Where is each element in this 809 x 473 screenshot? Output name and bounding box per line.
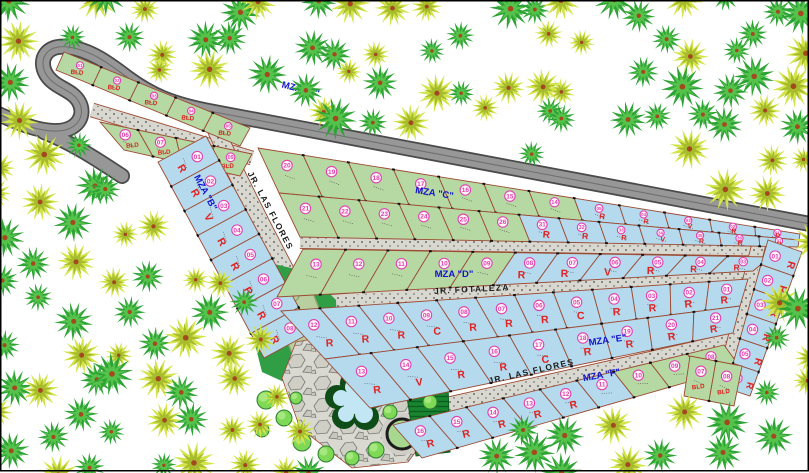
lot-number: 03 (648, 293, 656, 300)
bush-highlight (259, 393, 268, 402)
palm-tree-green-icon (545, 416, 584, 455)
lot-letter: R (648, 302, 657, 315)
lot-letter: BLD (181, 115, 195, 123)
palm-tree-yellow-icon (392, 104, 430, 141)
palm-tree-yellow-icon (568, 29, 594, 55)
palm-tree-yellow-icon (594, 406, 633, 445)
lot-number: 11 (398, 261, 405, 268)
setback-mark (514, 252, 517, 254)
lot-number: 02 (115, 78, 121, 83)
setback-mark (438, 206, 441, 208)
lot-letter: V (415, 376, 423, 389)
setback-mark (610, 357, 613, 359)
lot-number: 04 (641, 212, 647, 217)
bush-highlight (346, 452, 353, 459)
lot-number: 25 (460, 216, 468, 223)
lot-letter: C (433, 325, 442, 338)
setback-mark (370, 352, 373, 354)
bush-highlight (370, 444, 378, 452)
lot-number: 05 (654, 259, 662, 266)
palm-tree-green-icon (0, 0, 30, 23)
palm-tree-green-icon (0, 369, 33, 406)
palm-tree-green-icon (98, 419, 125, 446)
palm-tree-green-icon (713, 73, 749, 109)
lot-number: 06 (260, 276, 268, 283)
setback-mark (630, 286, 633, 288)
palm-tree-yellow-icon (664, 0, 704, 19)
lot-number: 13 (358, 369, 366, 376)
palm-tree-yellow-icon (772, 65, 809, 109)
lot-number: 12 (562, 391, 570, 398)
setback-mark (708, 281, 711, 283)
palm-tree-green-icon (627, 56, 659, 87)
setback-mark (552, 291, 555, 293)
lot-number: 09 (423, 312, 431, 319)
lot-number: 08 (526, 260, 534, 267)
lot-number: 09 (671, 363, 679, 370)
palm-tree-yellow-icon (548, 78, 576, 106)
lot-letter: BLD (107, 84, 121, 92)
setback-mark (452, 239, 455, 241)
lot-letter: R (643, 218, 649, 226)
palm-tree-yellow-icon (492, 72, 525, 105)
palm-tree-yellow-icon (173, 442, 215, 473)
palm-tree-green-icon (174, 402, 209, 437)
lot-number: 09 (228, 155, 234, 161)
lot-number: 18 (373, 175, 381, 182)
lot-number: 12 (310, 322, 318, 329)
setback-mark (357, 305, 360, 307)
palm-tree-green-icon (24, 283, 53, 312)
palm-tree-yellow-icon (112, 221, 139, 248)
setback-mark (599, 253, 602, 255)
lot-number: 07 (498, 306, 506, 313)
palm-tree-yellow-icon (137, 210, 170, 243)
lot-letter: BLD (218, 130, 232, 138)
lot-number: 03 (740, 259, 746, 265)
palm-tree-green-icon (114, 296, 146, 328)
setback-mark (344, 249, 347, 251)
palm-tree-green-icon (704, 433, 742, 471)
setback-mark (409, 398, 412, 400)
setback-mark (665, 275, 668, 277)
bush-highlight (424, 396, 431, 403)
lot-number: 11 (348, 319, 355, 326)
palm-tree-yellow-icon (756, 144, 788, 176)
lot-number: 06 (122, 132, 130, 139)
lot-number: 14 (402, 362, 410, 369)
site-plan-drawing: 01BLD02BLD03BLD04BLD05BLD06BLD07BLD08BLD… (0, 0, 809, 473)
palm-tree-yellow-icon (749, 94, 782, 127)
lot-number: 04 (697, 260, 704, 266)
palm-tree-green-icon (0, 218, 25, 258)
setback-mark (319, 294, 322, 296)
palm-tree-green-icon (489, 0, 531, 30)
lot-number: 02 (207, 178, 215, 185)
palm-tree-green-icon (661, 66, 704, 109)
lot-number: 12 (355, 261, 363, 268)
palm-tree-green-icon (37, 421, 69, 453)
setback-mark (398, 203, 401, 205)
lot-letter: R (699, 238, 705, 245)
lot-number: 21 (302, 206, 310, 213)
palm-tree-yellow-icon (792, 366, 809, 396)
setback-mark (429, 250, 432, 252)
lot-number: 04 (610, 296, 618, 303)
palm-tree-green-icon (478, 438, 515, 473)
lot-letter: R (734, 262, 740, 272)
lot-letter: R (361, 333, 370, 346)
lot-number: 08 (460, 309, 468, 316)
setback-mark (405, 289, 408, 291)
lot-number: 14 (551, 200, 558, 206)
lot-number: 16 (491, 349, 499, 356)
palm-tree-green-icon (541, 452, 582, 473)
lot-number: 01 (771, 253, 779, 260)
palm-tree-green-icon (0, 264, 19, 297)
lot-number: 01 (77, 63, 83, 68)
palm-tree-green-icon (301, 0, 337, 19)
palm-tree-yellow-icon (411, 0, 442, 22)
setback-mark (678, 228, 681, 230)
setback-mark (622, 277, 625, 279)
lot-number: 10 (385, 315, 393, 322)
setback-mark (478, 210, 481, 212)
lot-letter: BLD (144, 99, 158, 107)
lot-letter: R (397, 329, 406, 342)
bush-highlight (320, 448, 328, 456)
palm-tree-yellow-icon (609, 445, 648, 473)
setback-mark (508, 334, 511, 336)
palm-tree-yellow-icon (57, 243, 95, 281)
lot-number: 15 (453, 419, 461, 426)
setback-mark (600, 322, 603, 324)
lot-letter: C (577, 310, 586, 323)
lot-number: 07 (157, 139, 164, 146)
lot-number: 15 (446, 355, 454, 362)
lot-number: 19 (328, 169, 336, 176)
lot-letter: R (684, 298, 693, 311)
setback-mark (413, 238, 416, 240)
palm-tree-yellow-icon (182, 267, 209, 294)
lot-number: 04 (189, 108, 195, 113)
lot-letter: R (720, 295, 729, 307)
lot-number: 03 (220, 203, 228, 210)
palm-tree-yellow-icon (534, 20, 562, 48)
lot-number: 07 (569, 260, 577, 267)
palm-tree-green-icon (132, 260, 165, 293)
palm-tree-yellow-icon (22, 372, 59, 409)
palm-tree-yellow-icon (330, 0, 371, 24)
palm-tree-yellow-icon (130, 0, 160, 24)
lot-number: 21 (712, 315, 720, 322)
palm-tree-yellow-icon (246, 411, 274, 439)
setback-mark (358, 199, 361, 201)
palm-tree-green-icon (754, 416, 793, 455)
lot-number: 11 (599, 382, 606, 389)
palm-tree-yellow-icon (472, 94, 500, 122)
setback-mark (416, 346, 419, 348)
setback-mark (449, 390, 452, 392)
setback-mark (386, 249, 389, 251)
lot-number: 13 (526, 400, 534, 407)
palm-tree-green-icon (16, 247, 50, 281)
lot-letter: R (561, 268, 569, 280)
palm-tree-yellow-icon (417, 74, 456, 113)
setback-mark (691, 340, 694, 342)
setback-mark (646, 317, 649, 319)
setback-mark (528, 240, 531, 242)
lot-number: 13 (312, 261, 320, 268)
palm-tree-green-icon (643, 102, 671, 130)
setback-mark (718, 232, 721, 234)
lot-letter: R (325, 337, 334, 350)
bush-highlight (384, 406, 391, 413)
lot-letter: R (542, 230, 550, 242)
lot-number: 05 (226, 124, 232, 129)
palm-tree-yellow-icon (541, 0, 581, 20)
setback-mark (490, 240, 493, 242)
lot-number: 10 (635, 372, 643, 379)
palm-tree-yellow-icon (0, 177, 12, 209)
lot-number: 04 (749, 327, 757, 334)
setback-mark (692, 311, 695, 313)
palm-tree-yellow-icon (98, 267, 129, 298)
setback-mark (682, 244, 685, 246)
lot-letter: R (647, 266, 655, 277)
lot-number: 15 (506, 193, 514, 200)
lot-number: 05 (247, 252, 255, 259)
palm-tree-green-icon (779, 109, 809, 145)
palm-tree-green-icon (610, 101, 647, 138)
setback-mark (684, 255, 687, 257)
setback-mark (720, 244, 723, 246)
palm-tree-yellow-icon (147, 402, 183, 438)
palm-tree-yellow-icon (791, 146, 809, 172)
lot-number: 02 (686, 290, 694, 297)
palm-tree-yellow-icon (362, 41, 389, 68)
palm-tree-green-icon (446, 21, 475, 50)
lot-letter: R (690, 264, 697, 274)
lot-number: 20 (668, 322, 676, 329)
lot-number: 33 (619, 228, 625, 233)
setback-mark (474, 297, 477, 299)
lot-number: 09 (483, 260, 491, 267)
setback-mark (726, 255, 729, 257)
setback-mark (641, 254, 644, 256)
lot-number: 05 (573, 299, 581, 306)
setback-mark (598, 221, 601, 223)
lot-number: 31 (539, 222, 546, 229)
lot-letter: R (737, 240, 743, 247)
setback-mark (375, 237, 378, 239)
lot-letter: R (469, 321, 478, 334)
lot-number: 08 (286, 325, 294, 332)
palm-tree-green-icon (419, 38, 445, 64)
palm-tree-green-icon (706, 401, 749, 444)
palm-tree-green-icon (652, 24, 682, 54)
palm-tree-green-icon (448, 80, 474, 106)
setback-mark (578, 279, 581, 281)
setback-mark (513, 294, 516, 296)
setback-mark (638, 224, 641, 226)
palm-tree-yellow-icon (374, 0, 410, 26)
lot-number: 20 (283, 163, 291, 170)
palm-tree-green-icon (643, 438, 677, 472)
setback-mark (591, 289, 594, 291)
setback-mark (535, 282, 538, 284)
lot-number: 02 (764, 278, 772, 285)
lot-number: 10 (441, 261, 449, 268)
lot-number: 18 (579, 335, 587, 342)
palm-tree-yellow-icon (217, 361, 253, 397)
setback-mark (462, 340, 465, 342)
lot-letter: BLD (70, 69, 84, 77)
setback-mark (669, 283, 672, 285)
setback-mark (318, 307, 321, 309)
lot-number: 04 (233, 227, 241, 234)
setback-mark (708, 272, 711, 274)
palm-tree-green-icon (74, 452, 105, 473)
palm-tree-green-icon (54, 302, 93, 341)
setback-mark (471, 251, 474, 253)
setback-mark (362, 291, 365, 293)
lot-number: 03 (152, 93, 158, 98)
lot-number: 07 (273, 301, 281, 308)
lot-number: 17 (535, 342, 543, 349)
setback-mark (605, 242, 608, 244)
setback-mark (567, 241, 570, 243)
lot-number: 06 (611, 260, 619, 267)
setback-mark (651, 348, 654, 350)
lot-letter: R (505, 318, 514, 331)
palm-tree-yellow-icon (0, 20, 40, 62)
lot-number: 24 (420, 214, 428, 221)
palm-tree-green-icon (151, 452, 177, 473)
lot-letter: V (604, 266, 611, 278)
palm-tree-green-icon (64, 397, 99, 432)
lot-number: 16 (417, 428, 425, 435)
lot-number: 01 (194, 154, 202, 161)
setback-mark (556, 252, 559, 254)
lot-letter: BLD (126, 142, 140, 150)
setback-mark (758, 245, 761, 247)
palm-tree-yellow-icon (670, 129, 711, 170)
lot-number: 26 (499, 219, 507, 226)
palm-tree-green-icon (212, 21, 246, 55)
lot-number: 05 (741, 351, 748, 358)
palm-tree-yellow-icon (336, 59, 362, 85)
setback-mark (554, 328, 557, 330)
lot-number: 23 (381, 211, 389, 218)
lot-number: 06 (535, 303, 543, 310)
setback-mark (758, 235, 761, 237)
palm-tree-yellow-icon (218, 415, 248, 445)
setback-mark (435, 299, 438, 301)
bush-highlight (278, 412, 286, 420)
palm-tree-green-icon (191, 293, 230, 332)
lot-letter: R (612, 306, 621, 319)
palm-tree-yellow-icon (0, 152, 16, 185)
manzana-label: MZA "D" (435, 269, 474, 280)
setback-mark (337, 237, 340, 239)
lot-number: 03 (756, 302, 764, 309)
setback-mark (518, 214, 521, 216)
lot-number: 22 (341, 208, 349, 215)
lot-number: 07 (697, 368, 705, 375)
palm-tree-green-icon (53, 203, 92, 242)
lot-number: 14 (489, 410, 497, 417)
palm-tree-green-icon (0, 330, 20, 361)
lot-letter: R (541, 314, 550, 327)
bush-highlight (291, 393, 297, 399)
lot-number: 08 (723, 373, 731, 380)
palm-tree-green-icon (710, 0, 741, 11)
palm-tree-green-icon (0, 432, 30, 469)
setback-mark (318, 195, 321, 197)
setback-mark (558, 217, 561, 219)
palm-tree-yellow-icon (230, 449, 262, 473)
palm-tree-green-icon (363, 65, 398, 100)
palm-tree-yellow-icon (22, 183, 60, 221)
lot-letter: R (518, 269, 526, 281)
lot-number: 16 (462, 187, 470, 194)
palm-tree-green-icon (0, 63, 30, 103)
setback-mark (643, 243, 646, 245)
setback-mark (396, 302, 399, 304)
lot-number: 34 (658, 230, 664, 235)
lot-number: 01 (723, 286, 731, 293)
